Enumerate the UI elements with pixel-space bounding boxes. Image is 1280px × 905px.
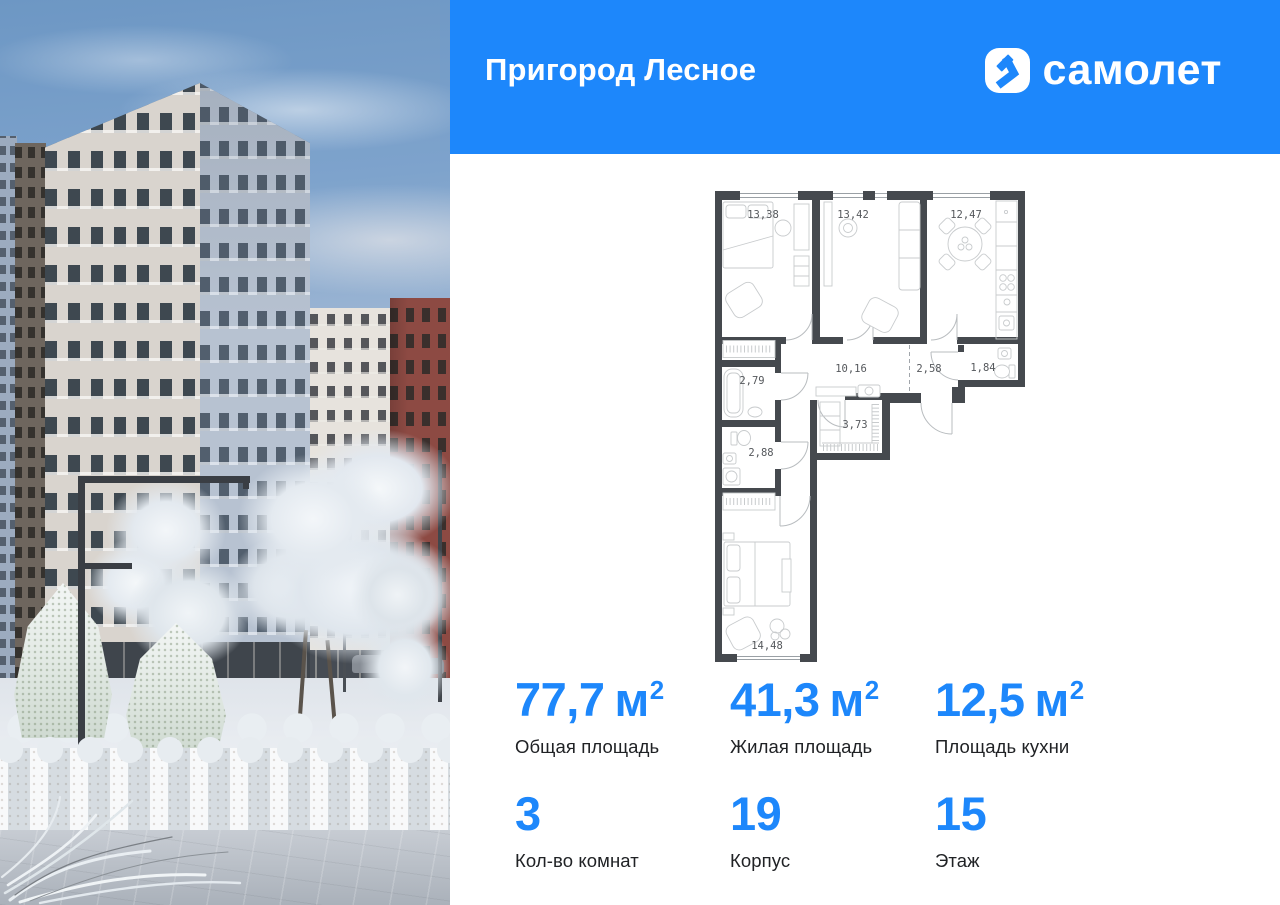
street-lamp-head	[243, 476, 249, 489]
room-area-hallway: 10,16	[835, 363, 867, 375]
stat-living-area-label: Жилая площадь	[730, 736, 935, 758]
stat-total-area-label: Общая площадь	[515, 736, 730, 758]
room-area-kitchen: 12,47	[950, 209, 982, 221]
header-bar: Пригород Лесное самолет	[450, 0, 1280, 154]
room-area-bathroom: 2,79	[739, 375, 764, 387]
samolet-logo-icon	[985, 48, 1030, 93]
stat-kitchen-area: 12,5м2 Площадь кухни	[935, 676, 1235, 758]
stat-total-area-value: 77,7	[515, 673, 604, 726]
stat-living-area-value: 41,3	[730, 673, 819, 726]
apartment-stats: 77,7м2 Общая площадь 41,3м2 Жилая площад…	[515, 676, 1235, 872]
furniture-bedroom-bottom	[723, 493, 791, 652]
building-photo	[0, 0, 450, 905]
room-area-corridor: 2,58	[916, 363, 941, 375]
stat-building-number: 19 Корпус	[730, 790, 935, 872]
room-area-wardrobe: 3,73	[842, 419, 867, 431]
stat-building-number-value: 19	[730, 790, 935, 837]
area-unit-sup: 2	[650, 675, 664, 705]
brand-name: самолет	[1043, 49, 1222, 92]
snowy-plants	[0, 755, 300, 905]
stat-total-area: 77,7м2 Общая площадь	[515, 676, 730, 758]
furniture-kitchen	[938, 201, 1017, 339]
brand-logo: самолет	[985, 48, 1222, 93]
room-area-bedroom-bottom: 14,48	[751, 640, 783, 652]
area-unit-sup: 2	[1070, 675, 1084, 705]
area-unit: м	[829, 673, 863, 726]
floor-plan: 13,38 13,42 12,47 2,79 10,16 2,58 1,84 2…	[703, 188, 1028, 676]
stat-floor: 15 Этаж	[935, 790, 1235, 872]
plan-doors	[780, 314, 958, 526]
room-area-guest-wc: 1,84	[970, 362, 995, 374]
stat-floor-label: Этаж	[935, 850, 1235, 872]
stat-kitchen-area-label: Площадь кухни	[935, 736, 1235, 758]
area-unit: м	[614, 673, 648, 726]
listing-card: Пригород Лесное самолет	[0, 0, 1280, 905]
area-unit: м	[1034, 673, 1068, 726]
project-title: Пригород Лесное	[485, 52, 756, 88]
stat-rooms-count: 3 Кол-во комнат	[515, 790, 730, 872]
stat-building-number-label: Корпус	[730, 850, 935, 872]
room-area-bedroom-top: 13,38	[747, 209, 779, 221]
info-panel: Пригород Лесное самолет	[450, 0, 1280, 905]
stat-living-area: 41,3м2 Жилая площадь	[730, 676, 935, 758]
stat-rooms-count-label: Кол-во комнат	[515, 850, 730, 872]
street-lamp-arm	[78, 476, 250, 483]
stat-floor-value: 15	[935, 790, 1235, 837]
stats-row-details: 3 Кол-во комнат 19 Корпус 15 Этаж	[515, 790, 1235, 872]
room-area-wc: 2,88	[748, 447, 773, 459]
room-area-living-room: 13,42	[837, 209, 869, 221]
street-lamp-arm	[78, 563, 132, 569]
stat-kitchen-area-value: 12,5	[935, 673, 1024, 726]
stat-rooms-count-value: 3	[515, 790, 730, 837]
stats-row-areas: 77,7м2 Общая площадь 41,3м2 Жилая площад…	[515, 676, 1235, 758]
furniture-guest-wc	[995, 348, 1016, 378]
furniture-living-room	[824, 202, 920, 335]
snowy-tree	[335, 545, 450, 720]
area-unit-sup: 2	[865, 675, 879, 705]
furniture-wc	[723, 431, 751, 486]
